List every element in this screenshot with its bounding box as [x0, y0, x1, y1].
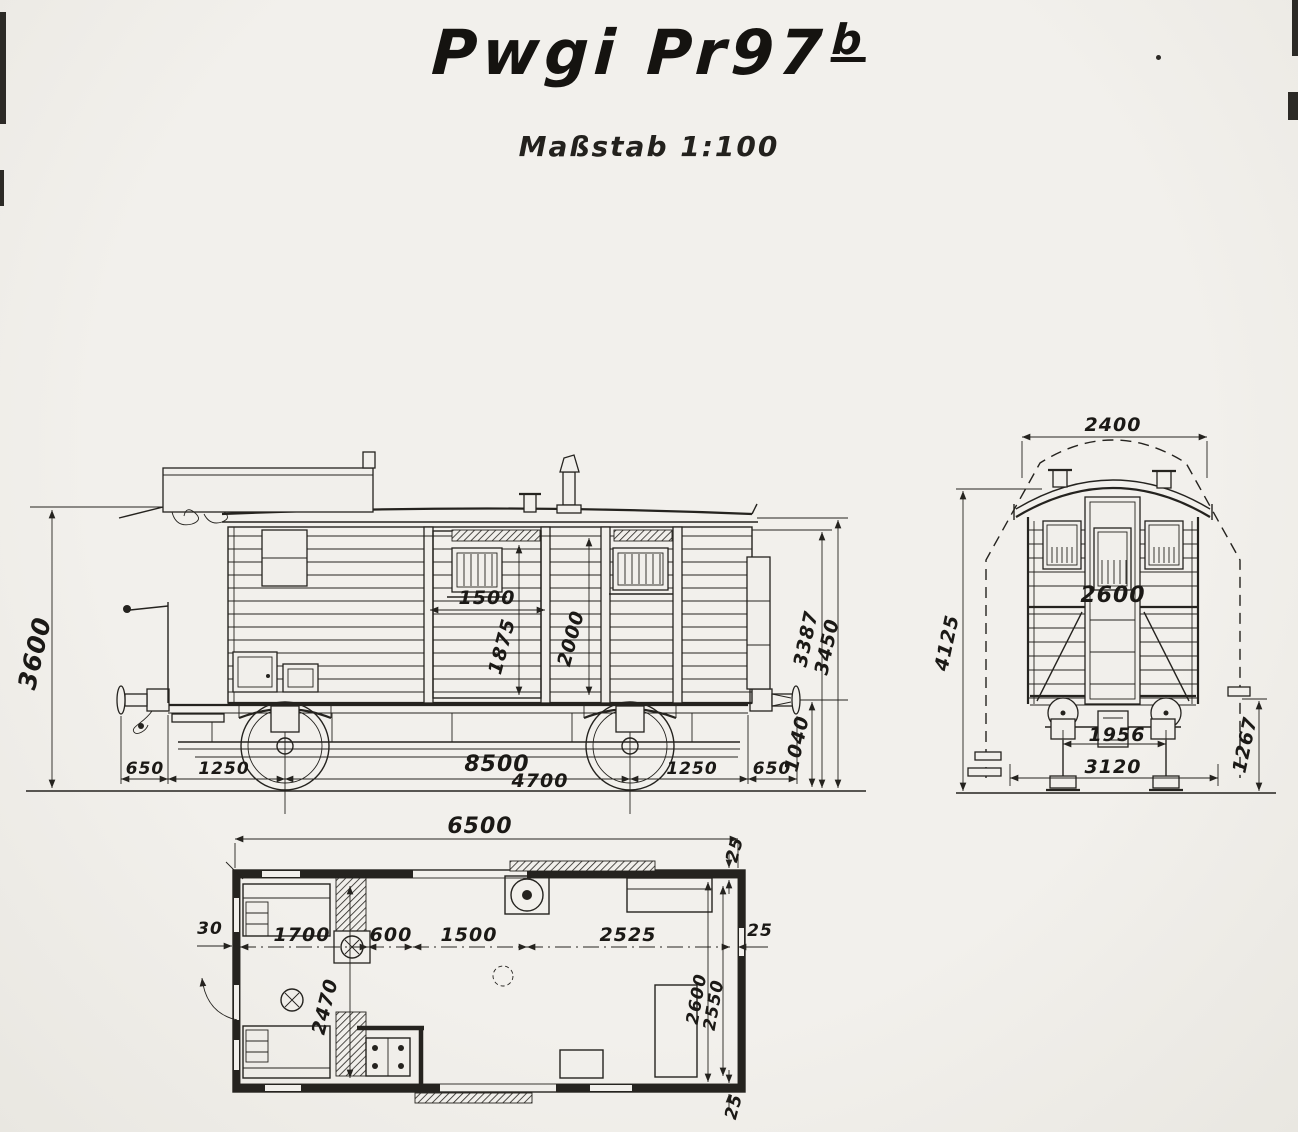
- plan-window: [590, 1085, 632, 1091]
- vent-louvre: [452, 530, 540, 541]
- dim-front-overall-height: 4125: [930, 613, 964, 674]
- dim-side-wall-right: 25: [747, 921, 773, 941]
- plan-end-door-opening: [234, 985, 239, 1020]
- stovepipe-mark: [493, 966, 513, 986]
- wheel-left: [239, 702, 331, 814]
- floor-plan: 6500 30 1700 600 1500 2525 25 2470 2600 …: [197, 814, 773, 1122]
- dim-wall-bottom: 25: [721, 1092, 747, 1122]
- table: [627, 878, 712, 912]
- dim-overall-height: 3600: [12, 507, 162, 788]
- step-iron: [975, 752, 1001, 760]
- step-iron: [968, 768, 1001, 776]
- plan-window: [234, 898, 239, 932]
- dim-interior-length: 6500: [447, 814, 512, 839]
- dim-freight-room: 2525: [600, 924, 657, 946]
- dim-compartment: 1700: [274, 924, 331, 946]
- front-window-right: [1145, 521, 1183, 569]
- dim-step-height: 1267: [1228, 715, 1261, 775]
- plan-window: [265, 1085, 301, 1091]
- dim-door-width: 1500: [459, 587, 516, 609]
- side-elevation: 3600: [12, 452, 866, 814]
- dim-wall-height: 2000: [553, 608, 589, 669]
- dim-door-opening: 1500: [441, 924, 498, 946]
- dim-door-height: 1875: [484, 616, 520, 677]
- sliding-door-right: [601, 527, 682, 703]
- sliding-door-leaf-top: [510, 861, 655, 871]
- step-iron: [1228, 687, 1250, 696]
- vent-louvre: [614, 530, 672, 541]
- front-window-left: [1043, 521, 1081, 569]
- dim-overhang-left: 1250: [198, 759, 249, 779]
- barred-window-2: [609, 548, 673, 594]
- plan-walls: [233, 870, 745, 1092]
- side-bottom-dims: 650 1250 8500 4700 1250 650: [121, 715, 797, 792]
- stove-chimney: [557, 455, 581, 513]
- dim-side-overall-height: 3600: [12, 614, 57, 692]
- service-compartment: [202, 884, 330, 1078]
- end-door: [747, 557, 770, 689]
- dim-wheel-gauge: 1956: [1089, 724, 1146, 746]
- buffer-right: [750, 686, 800, 714]
- dim-lobby: 600: [370, 924, 413, 946]
- dim-width-over-steps: 3120: [1085, 756, 1142, 778]
- plan-window: [234, 1040, 239, 1070]
- plan-window: [262, 871, 300, 877]
- dim-roof-width: 2400: [1085, 414, 1142, 436]
- luggage-room: [357, 876, 712, 1084]
- lockers: [233, 652, 318, 692]
- door-swing-arc: [202, 978, 237, 1020]
- dim-end-wall: 30: [197, 919, 223, 939]
- plan-dims: 6500 30 1700 600 1500 2525 25 2470 2600 …: [197, 814, 773, 1122]
- bench: [560, 1050, 603, 1078]
- front-elevation: 2600 24: [930, 414, 1276, 793]
- dim-body-width: 2600: [1080, 583, 1145, 608]
- dim-overhang-right: 1250: [666, 759, 717, 779]
- drawing-sheet: Pwgi Pr97b Maßstab 1:100 3600: [0, 0, 1298, 1132]
- wheel-right: [584, 702, 676, 814]
- dim-buffer-left: 650: [126, 759, 165, 779]
- plan-opening: [739, 928, 744, 956]
- partition-with-pockets: [336, 878, 366, 1076]
- technical-drawing: 3600: [0, 0, 1298, 1132]
- dim-wheelbase: 4700: [511, 770, 569, 792]
- sliding-door-main: [424, 527, 550, 703]
- sliding-door-leaf-bottom: [415, 1093, 532, 1103]
- buffer-left: [117, 686, 169, 733]
- compartment-window: [262, 530, 307, 586]
- dim-buffer-right: 650: [753, 759, 792, 779]
